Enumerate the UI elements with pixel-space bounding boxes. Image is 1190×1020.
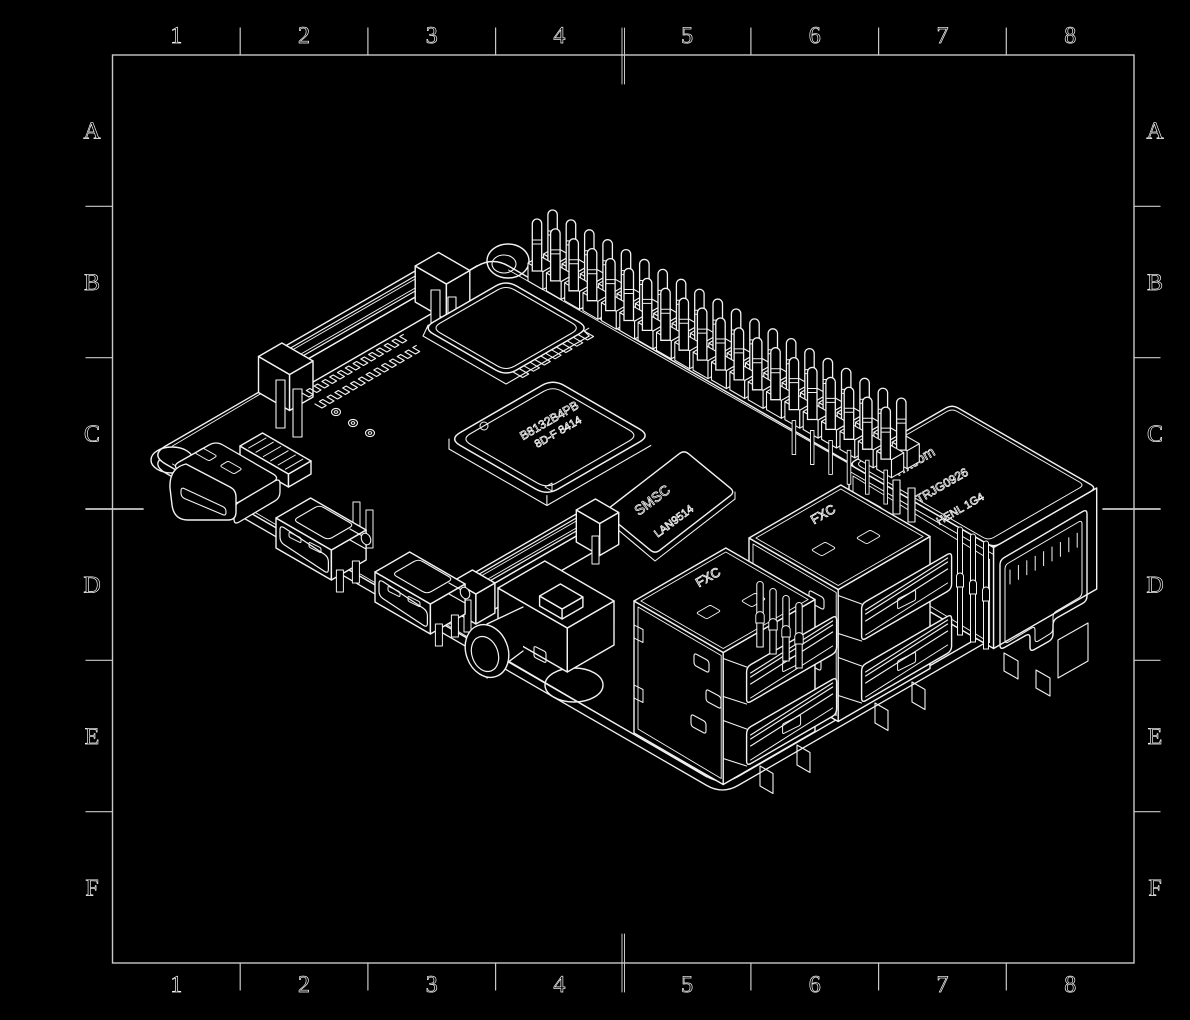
svg-text:E: E bbox=[1148, 724, 1163, 750]
svg-text:D: D bbox=[83, 573, 100, 599]
svg-text:D: D bbox=[1146, 573, 1163, 599]
svg-text:5: 5 bbox=[681, 23, 693, 49]
svg-text:8: 8 bbox=[1064, 23, 1076, 49]
svg-text:8: 8 bbox=[1064, 972, 1076, 998]
svg-text:4: 4 bbox=[553, 23, 565, 49]
svg-text:7: 7 bbox=[937, 23, 949, 49]
svg-text:3: 3 bbox=[426, 972, 438, 998]
svg-text:4: 4 bbox=[553, 972, 565, 998]
svg-text:5: 5 bbox=[681, 972, 693, 998]
svg-text:1: 1 bbox=[170, 23, 182, 49]
svg-text:C: C bbox=[84, 421, 100, 447]
svg-text:E: E bbox=[85, 724, 100, 750]
svg-text:7: 7 bbox=[937, 972, 949, 998]
svg-text:2: 2 bbox=[298, 972, 310, 998]
svg-text:B: B bbox=[1147, 270, 1163, 296]
svg-text:1: 1 bbox=[170, 972, 182, 998]
svg-text:6: 6 bbox=[809, 23, 821, 49]
svg-text:2: 2 bbox=[298, 23, 310, 49]
svg-text:F: F bbox=[1148, 875, 1161, 901]
svg-text:F: F bbox=[85, 875, 98, 901]
svg-text:A: A bbox=[83, 119, 101, 145]
svg-text:B: B bbox=[84, 270, 100, 296]
svg-text:A: A bbox=[1146, 119, 1164, 145]
svg-text:C: C bbox=[1147, 421, 1163, 447]
svg-text:6: 6 bbox=[809, 972, 821, 998]
svg-text:3: 3 bbox=[426, 23, 438, 49]
